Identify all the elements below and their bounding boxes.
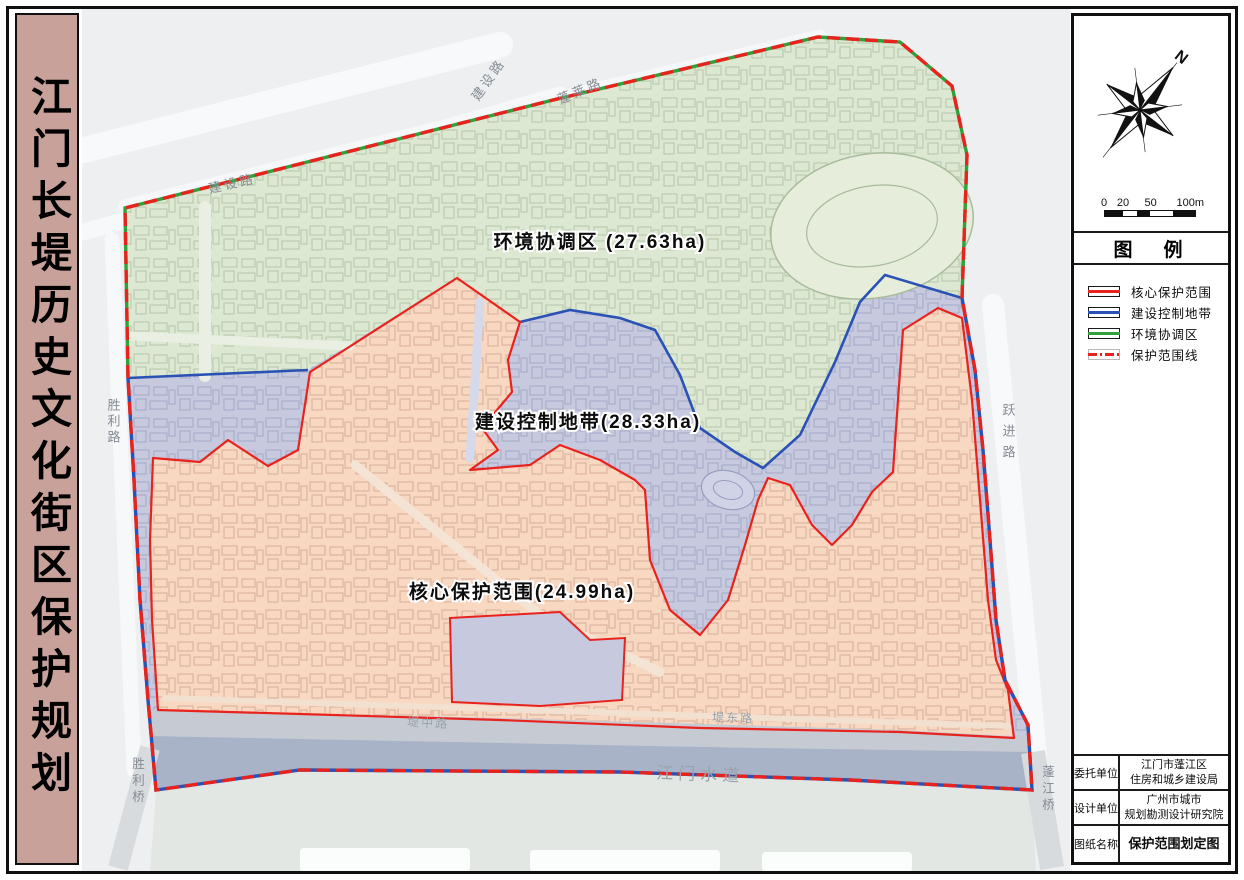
title-block: 委托单位 江门市蓬江区 住房和城乡建设局 设计单位 广州市城市 规划勘测设计研究… — [1074, 754, 1228, 862]
compass-scale-section: N 0 20 50 100m — [1074, 16, 1228, 233]
label-yuejin-road: 跃进路 — [1001, 403, 1016, 466]
construction-boundary-symbol — [1088, 307, 1120, 318]
legend-item-environment: 环境协调区 — [1088, 323, 1218, 344]
scale-tick: 50 — [1144, 197, 1156, 209]
title-block-value-line: 江门市蓬江区 — [1141, 758, 1207, 772]
label-pengjiang-bridge: 蓬江桥 — [1040, 765, 1054, 815]
title-block-label: 委托单位 — [1074, 756, 1120, 789]
title-block-row-designer: 设计单位 广州市城市 规划勘测设计研究院 — [1074, 791, 1228, 826]
title-block-value: 广州市城市 规划勘测设计研究院 — [1120, 791, 1228, 824]
title-block-value: 江门市蓬江区 住房和城乡建设局 — [1120, 756, 1228, 789]
title-block-value-line: 保护范围划定图 — [1128, 836, 1219, 853]
label-didong-road: 堤东路 — [712, 709, 755, 725]
plan-map: 环境协调区 (27.63ha) 建设控制地带(28.33ha) 核心保护范围(2… — [82, 9, 1070, 871]
map-sidebar: N 0 20 50 100m 图 例 核心保护范围 — [1071, 13, 1231, 865]
legend-item-construction: 建设控制地带 — [1088, 302, 1218, 323]
legend-item-label: 建设控制地带 — [1131, 303, 1212, 322]
title-bar: 江门长堤历史文化街区保护规划 — [15, 13, 79, 865]
label-dizhong-road: 堤中路 — [407, 714, 450, 731]
label-construction-zone: 建设控制地带(28.33ha) — [475, 410, 701, 433]
title-block-value: 保护范围划定图 — [1120, 826, 1228, 862]
legend-item-core: 核心保护范围 — [1088, 281, 1218, 302]
legend-title: 图 例 — [1074, 233, 1228, 265]
title-block-value-line: 规划勘测设计研究院 — [1125, 808, 1224, 822]
scale-tick: 100m — [1176, 197, 1204, 209]
scale-tick: 0 — [1101, 197, 1107, 209]
legend-item-label: 保护范围线 — [1131, 345, 1199, 364]
label-core-zone: 核心保护范围(24.99ha) — [409, 580, 635, 603]
sheet-title: 江门长堤历史文化街区保护规划 — [27, 75, 68, 803]
legend-item-label: 核心保护范围 — [1131, 282, 1212, 301]
label-shengli-road: 胜利路 — [106, 398, 121, 446]
plan-sheet: 江门长堤历史文化街区保护规划 — [0, 0, 1244, 880]
title-block-label: 设计单位 — [1074, 791, 1120, 824]
label-shengli-bridge: 胜利桥 — [130, 756, 144, 807]
title-block-value-line: 住房和城乡建设局 — [1130, 773, 1218, 787]
north-label: N — [1171, 47, 1191, 68]
legend-item-protection-line: 保护范围线 — [1088, 344, 1218, 365]
title-block-value-line: 广州市城市 — [1147, 793, 1202, 807]
scale-bar: 0 20 50 100m — [1104, 197, 1196, 217]
title-block-row-client: 委托单位 江门市蓬江区 住房和城乡建设局 — [1074, 756, 1228, 791]
scale-tick: 20 — [1117, 197, 1129, 209]
legend-item-label: 环境协调区 — [1131, 324, 1199, 343]
scale-bar-segments — [1104, 210, 1196, 217]
legend: 核心保护范围 建设控制地带 环境协调区 保护范围线 — [1074, 265, 1228, 371]
label-environment-zone: 环境协调区 (27.63ha) — [494, 230, 707, 253]
label-jiangmen-waterway: 江门水道 — [656, 763, 745, 785]
environment-boundary-symbol — [1088, 328, 1120, 339]
title-block-label: 图纸名称 — [1074, 826, 1120, 862]
core-boundary-symbol — [1088, 286, 1120, 297]
compass-rose: N — [1074, 22, 1228, 182]
protection-line-symbol — [1088, 349, 1120, 360]
scale-tick-labels: 0 20 50 100m — [1104, 197, 1196, 210]
title-block-row-drawing-name: 图纸名称 保护范围划定图 — [1074, 826, 1228, 862]
map-panel: 环境协调区 (27.63ha) 建设控制地带(28.33ha) 核心保护范围(2… — [82, 9, 1070, 871]
